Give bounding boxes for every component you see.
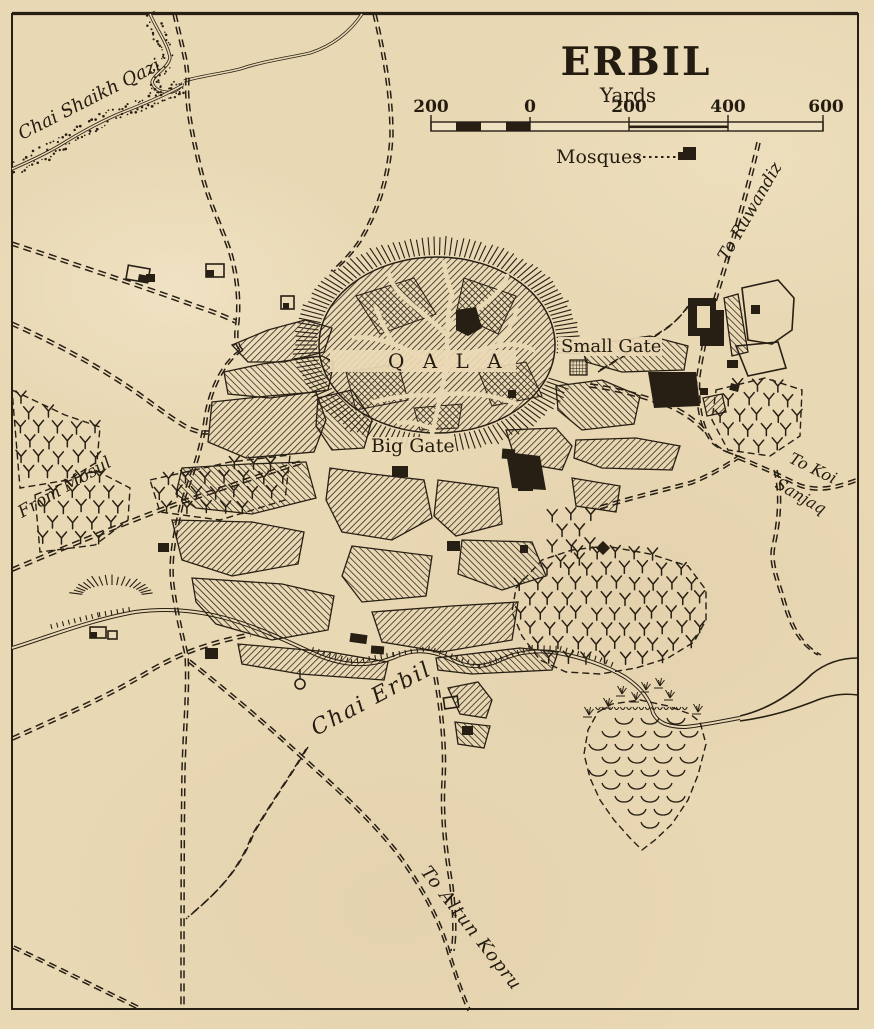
scale-tick-1: 0 bbox=[524, 97, 536, 117]
grass-tufts bbox=[583, 678, 703, 717]
scale-tick-0: 200 bbox=[413, 97, 449, 117]
scale-bar: 200 0 200 400 600 bbox=[413, 97, 844, 131]
marsh bbox=[583, 678, 706, 850]
map-page: ERBIL Yards 200 0 200 400 600 Mosques Ch… bbox=[0, 0, 874, 1029]
map-title: ERBIL bbox=[561, 39, 712, 85]
river-chai-shaikh-qazi bbox=[12, 14, 362, 169]
erbil-map: ERBIL Yards 200 0 200 400 600 Mosques Ch… bbox=[0, 0, 874, 1029]
northeast-complex bbox=[688, 280, 794, 416]
label-from-mosul: From Mosul bbox=[14, 453, 115, 523]
khan-building bbox=[570, 360, 587, 375]
scale-tick-4: 600 bbox=[808, 97, 844, 117]
scale-tick-3: 400 bbox=[710, 97, 746, 117]
scale-tick-2: 200 bbox=[611, 97, 647, 117]
place-labels: Chai Shaikh Qazi To Ruwandiz Small Gate … bbox=[14, 54, 840, 994]
label-to-ruwandiz: To Ruwandiz bbox=[714, 158, 787, 264]
label-small-gate: Small Gate bbox=[561, 336, 661, 357]
label-big-gate: Big Gate bbox=[371, 435, 455, 457]
label-qala: Q A L A bbox=[388, 349, 508, 373]
legend-mosques-label: Mosques bbox=[556, 146, 642, 168]
legend: Mosques bbox=[556, 146, 696, 168]
label-to-altun-kopru: To Altun Kopru bbox=[416, 862, 526, 994]
legend-mosque-swatch bbox=[678, 147, 696, 160]
hill-hachure bbox=[69, 575, 152, 595]
